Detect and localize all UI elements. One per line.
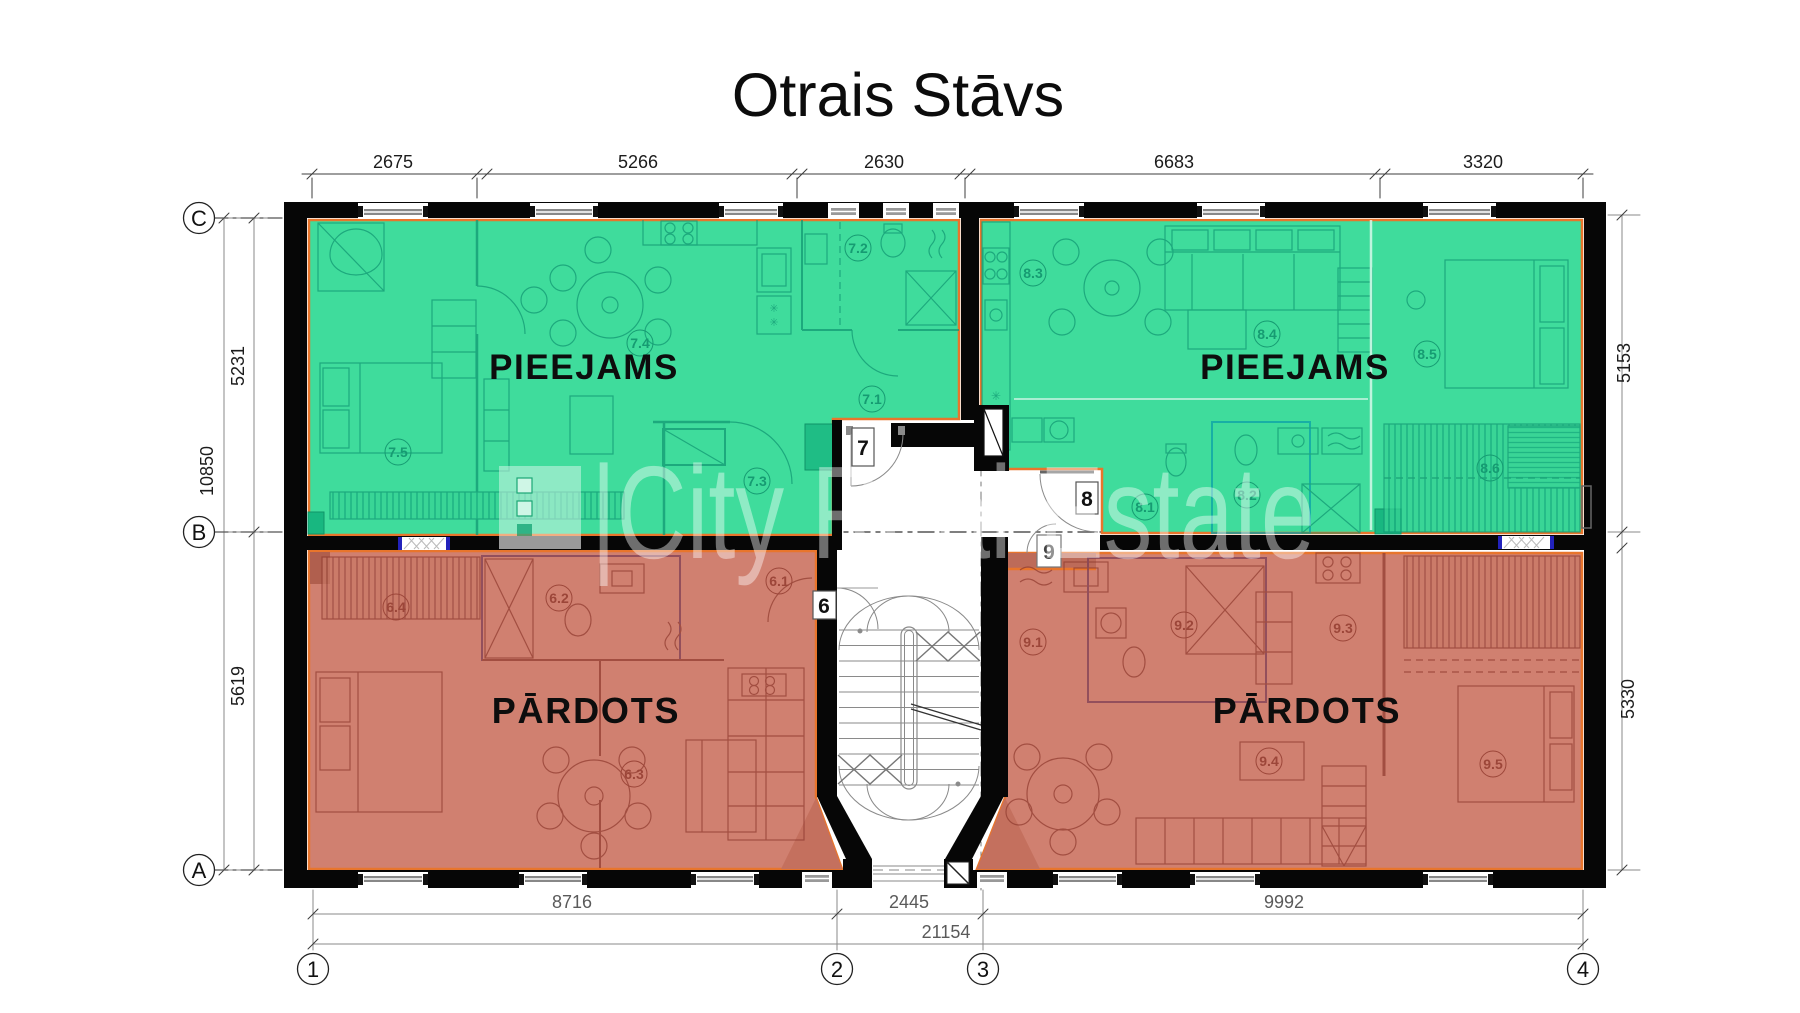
svg-text:5330: 5330 bbox=[1618, 679, 1638, 719]
svg-text:8.4: 8.4 bbox=[1257, 326, 1277, 342]
svg-text:2: 2 bbox=[831, 957, 843, 982]
svg-text:7.1: 7.1 bbox=[862, 391, 882, 407]
svg-text:9.3: 9.3 bbox=[1333, 620, 1353, 636]
svg-text:✳: ✳ bbox=[991, 389, 1001, 403]
svg-text:5619: 5619 bbox=[228, 666, 248, 706]
svg-text:5266: 5266 bbox=[618, 152, 658, 172]
svg-text:A: A bbox=[192, 858, 207, 883]
svg-text:6: 6 bbox=[818, 595, 830, 618]
svg-text:2630: 2630 bbox=[864, 152, 904, 172]
svg-text:PĀRDOTS: PĀRDOTS bbox=[1213, 690, 1402, 731]
svg-text:1: 1 bbox=[307, 957, 319, 982]
svg-text:7.2: 7.2 bbox=[848, 240, 868, 256]
svg-text:2675: 2675 bbox=[373, 152, 413, 172]
svg-text:✳: ✳ bbox=[769, 303, 778, 315]
svg-text:|City Real Estate: |City Real Estate bbox=[591, 439, 1315, 586]
svg-text:C: C bbox=[191, 206, 207, 231]
svg-text:PIEEJAMS: PIEEJAMS bbox=[489, 348, 679, 387]
svg-text:B: B bbox=[192, 520, 207, 545]
svg-text:8.5: 8.5 bbox=[1417, 346, 1437, 362]
svg-text:9.5: 9.5 bbox=[1483, 756, 1503, 772]
svg-text:9992: 9992 bbox=[1264, 892, 1304, 912]
svg-text:5231: 5231 bbox=[228, 346, 248, 386]
svg-text:7.5: 7.5 bbox=[388, 444, 408, 460]
svg-text:9.4: 9.4 bbox=[1259, 753, 1279, 769]
svg-text:4: 4 bbox=[1577, 957, 1589, 982]
svg-text:5153: 5153 bbox=[1614, 343, 1634, 383]
svg-text:8.3: 8.3 bbox=[1023, 265, 1043, 281]
svg-text:3: 3 bbox=[977, 957, 989, 982]
svg-text:2445: 2445 bbox=[889, 892, 929, 912]
svg-text:8.6: 8.6 bbox=[1480, 460, 1500, 476]
svg-text:9.2: 9.2 bbox=[1174, 617, 1194, 633]
svg-text:9.1: 9.1 bbox=[1023, 634, 1043, 650]
svg-text:8716: 8716 bbox=[552, 892, 592, 912]
svg-text:PIEEJAMS: PIEEJAMS bbox=[1200, 348, 1390, 387]
svg-text:Otrais Stāvs: Otrais Stāvs bbox=[732, 61, 1064, 129]
svg-text:10850: 10850 bbox=[197, 446, 217, 496]
svg-text:6683: 6683 bbox=[1154, 152, 1194, 172]
svg-text:6.2: 6.2 bbox=[549, 590, 569, 606]
svg-text:✳: ✳ bbox=[769, 317, 778, 329]
svg-text:3320: 3320 bbox=[1463, 152, 1503, 172]
svg-text:6.3: 6.3 bbox=[624, 766, 644, 782]
svg-text:6.4: 6.4 bbox=[386, 599, 406, 615]
svg-text:21154: 21154 bbox=[922, 922, 971, 942]
svg-text:PĀRDOTS: PĀRDOTS bbox=[492, 690, 681, 731]
